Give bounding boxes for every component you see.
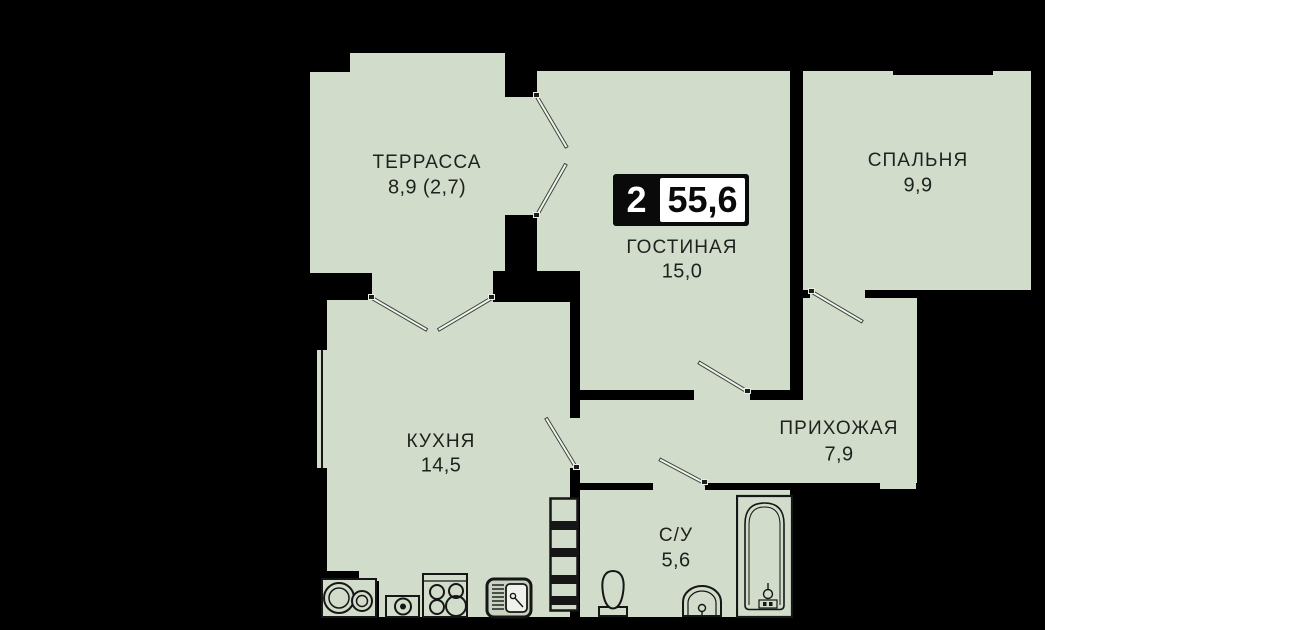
room-hallway-corridor [580,400,917,483]
bathroom-label: С/У [659,525,693,547]
page-margin [1045,0,1301,630]
door-hinge [701,479,708,485]
wall-segment [310,273,372,300]
door-hinge [744,388,751,394]
opening-terrace-living [505,97,537,215]
bedroom-area: 9,9 [903,175,932,198]
shaft-ladder-icon [549,497,580,612]
living-area: 15,0 [662,261,703,284]
door-hinge [533,92,540,98]
total-area-badge: 55,6 [660,178,745,222]
terrace-area: 8,9 (2,7) [388,177,466,200]
room-count-badge: 2 [613,179,660,221]
room-terrace [310,53,505,298]
door-hinge [573,464,580,470]
stove-icon [421,570,470,618]
door-hinge [808,288,815,294]
wall-segment [570,302,580,418]
door-hinge [533,212,540,218]
washing-machine-icon [317,571,379,618]
dishwasher-icon [385,595,421,618]
toilet-icon [595,569,631,618]
wall-segment [310,53,350,72]
terrace-label: ТЕРРАССА [372,152,481,174]
opening-hallway-bathroom [653,481,705,492]
floor-plan-canvas: 2 55,6 ТЕРРАССА 8,9 (2,7) ГОСТИНАЯ 15,0 … [0,0,1301,630]
hallway-label: ПРИХОЖАЯ [779,418,898,440]
door-hinge [368,294,375,300]
kitchen-label: КУХНЯ [407,431,476,453]
door-hinge [488,294,495,300]
room-hallway-entry [803,298,917,400]
kitchen-sink-icon [485,576,533,619]
wall-segment [570,468,580,492]
bathroom-area: 5,6 [661,550,690,573]
living-label: ГОСТИНАЯ [626,237,737,259]
opening-terrace-kitchen [372,273,492,302]
wall-segment [493,271,580,302]
wall-segment [893,71,993,75]
hallway-area: 7,9 [824,444,853,467]
washbasin-icon [680,582,724,618]
bedroom-label: СПАЛЬНЯ [868,150,969,172]
bathtub-icon [736,494,794,619]
kitchen-window-glass-line [321,350,323,468]
kitchen-area: 14,5 [421,455,462,478]
apartment-badge: 2 55,6 [613,174,749,226]
entrance-threshold [880,483,916,489]
